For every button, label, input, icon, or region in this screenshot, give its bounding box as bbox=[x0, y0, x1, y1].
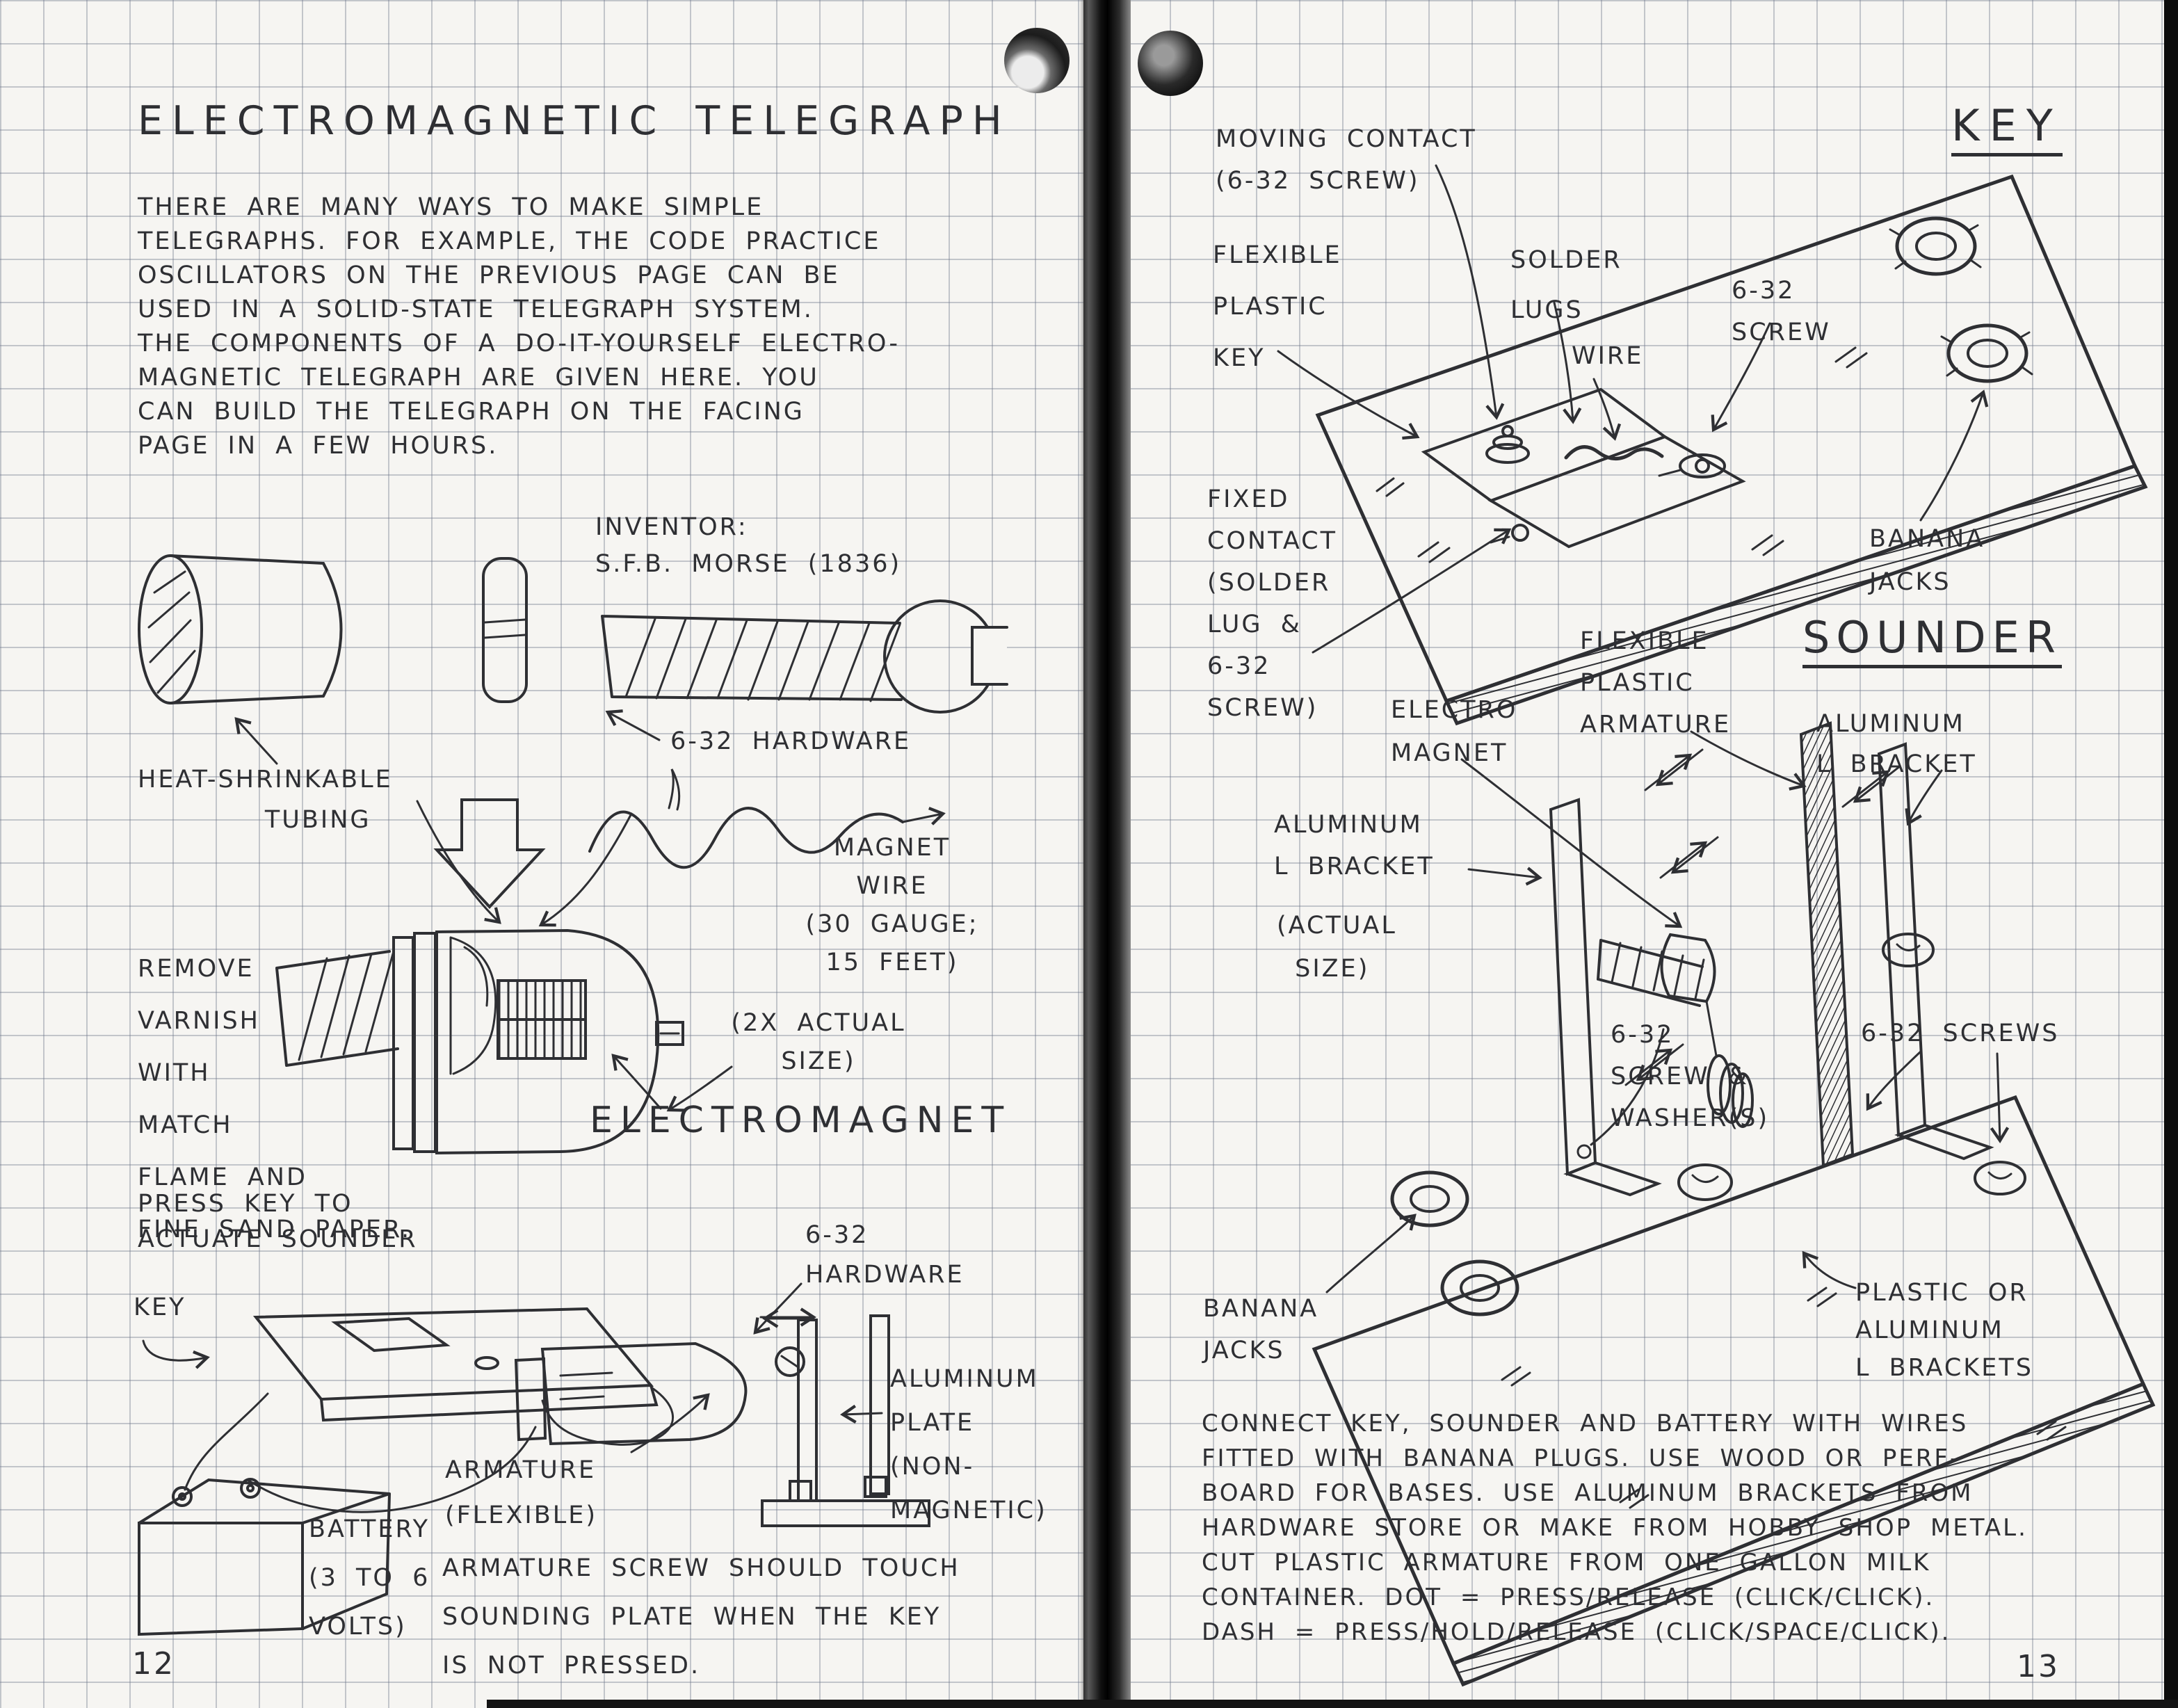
intro-paragraph: THERE ARE MANY WAYS TO MAKE SIMPLE TELEG… bbox=[138, 191, 900, 463]
plate-label: ALUMINUM PLATE (NON- MAGNETIC) bbox=[890, 1357, 1047, 1533]
actual-size-label: (ACTUAL SIZE) bbox=[1277, 904, 1397, 990]
press-key-label: PRESS KEY TO ACTUATE SOUNDER bbox=[138, 1186, 418, 1257]
battery-label: BATTERY (3 TO 6 VOLTS) bbox=[309, 1505, 430, 1651]
flexible-key-label: FLEXIBLE PLASTIC KEY bbox=[1213, 229, 1342, 384]
brackets-label: PLASTIC OR ALUMINUM L BRACKETS bbox=[1855, 1274, 2033, 1387]
scale-label: (2X ACTUAL SIZE) bbox=[704, 1004, 933, 1081]
heat-shrink-tube-drawing bbox=[139, 556, 526, 764]
magnet-wire-label: MAGNET WIRE (30 GAUGE; 15 FEET) bbox=[777, 829, 1007, 982]
screw-drawing bbox=[602, 601, 1007, 740]
l-bracket-left-label: ALUMINUM L BRACKET bbox=[1274, 804, 1435, 887]
armature-note: ARMATURE SCREW SHOULD TOUCH SOUNDING PLA… bbox=[442, 1544, 960, 1690]
page-title: ELECTROMAGNETIC TELEGRAPH bbox=[138, 100, 1011, 142]
banana-jacks-top-label: BANANA JACKS bbox=[1869, 517, 1985, 604]
page-number-left: 12 bbox=[132, 1647, 175, 1681]
key-pointer-label: KEY bbox=[134, 1291, 186, 1325]
key-section-title: KEY bbox=[1951, 103, 2063, 156]
flexible-armature-label: FLEXIBLE PLASTIC ARMATURE bbox=[1580, 620, 1731, 746]
sounder-section-title: SOUNDER bbox=[1802, 615, 2062, 668]
wire-label: WIRE bbox=[1572, 339, 1643, 373]
hardware-side-label: 6-32 HARDWARE bbox=[805, 1216, 965, 1295]
down-arrow-icon bbox=[417, 800, 631, 925]
electromagnet-label: ELECTROMAGNET bbox=[590, 1100, 1011, 1141]
hardware-top-label: 6-32 HARDWARE bbox=[670, 725, 911, 759]
tubing-label: HEAT-SHRINKABLE TUBING bbox=[138, 759, 393, 840]
outro-paragraph: CONNECT KEY, SOUNDER AND BATTERY WITH WI… bbox=[1202, 1406, 2028, 1650]
solder-lugs-label: SOLDER LUGS bbox=[1510, 235, 1622, 335]
moving-contact-label: MOVING CONTACT (6-32 SCREW) bbox=[1216, 118, 1477, 202]
screw-label: 6-32 SCREW bbox=[1732, 270, 1831, 353]
screw-washer-label: 6-32 SCREW & WASHER(S) bbox=[1611, 1014, 1769, 1139]
notebook-scan: ELECTROMAGNETIC TELEGRAPH THERE ARE MANY… bbox=[0, 0, 2178, 1708]
page-number-right: 13 bbox=[2017, 1650, 2060, 1684]
l-bracket-right-label: ALUMINUM L BRACKET bbox=[1816, 704, 1977, 784]
electro-magnet-label: ELECTRO MAGNET bbox=[1391, 688, 1517, 775]
inventor-label: INVENTOR: S.F.B. MORSE (1836) bbox=[595, 509, 901, 583]
fixed-contact-label: FIXED CONTACT (SOLDER LUG & 6-32 SCREW) bbox=[1207, 478, 1337, 729]
screws-label: 6-32 SCREWS bbox=[1861, 1017, 2059, 1051]
armature-label: ARMATURE (FLEXIBLE) bbox=[445, 1448, 597, 1538]
banana-jacks-bottom-label: BANANA JACKS bbox=[1203, 1288, 1318, 1371]
